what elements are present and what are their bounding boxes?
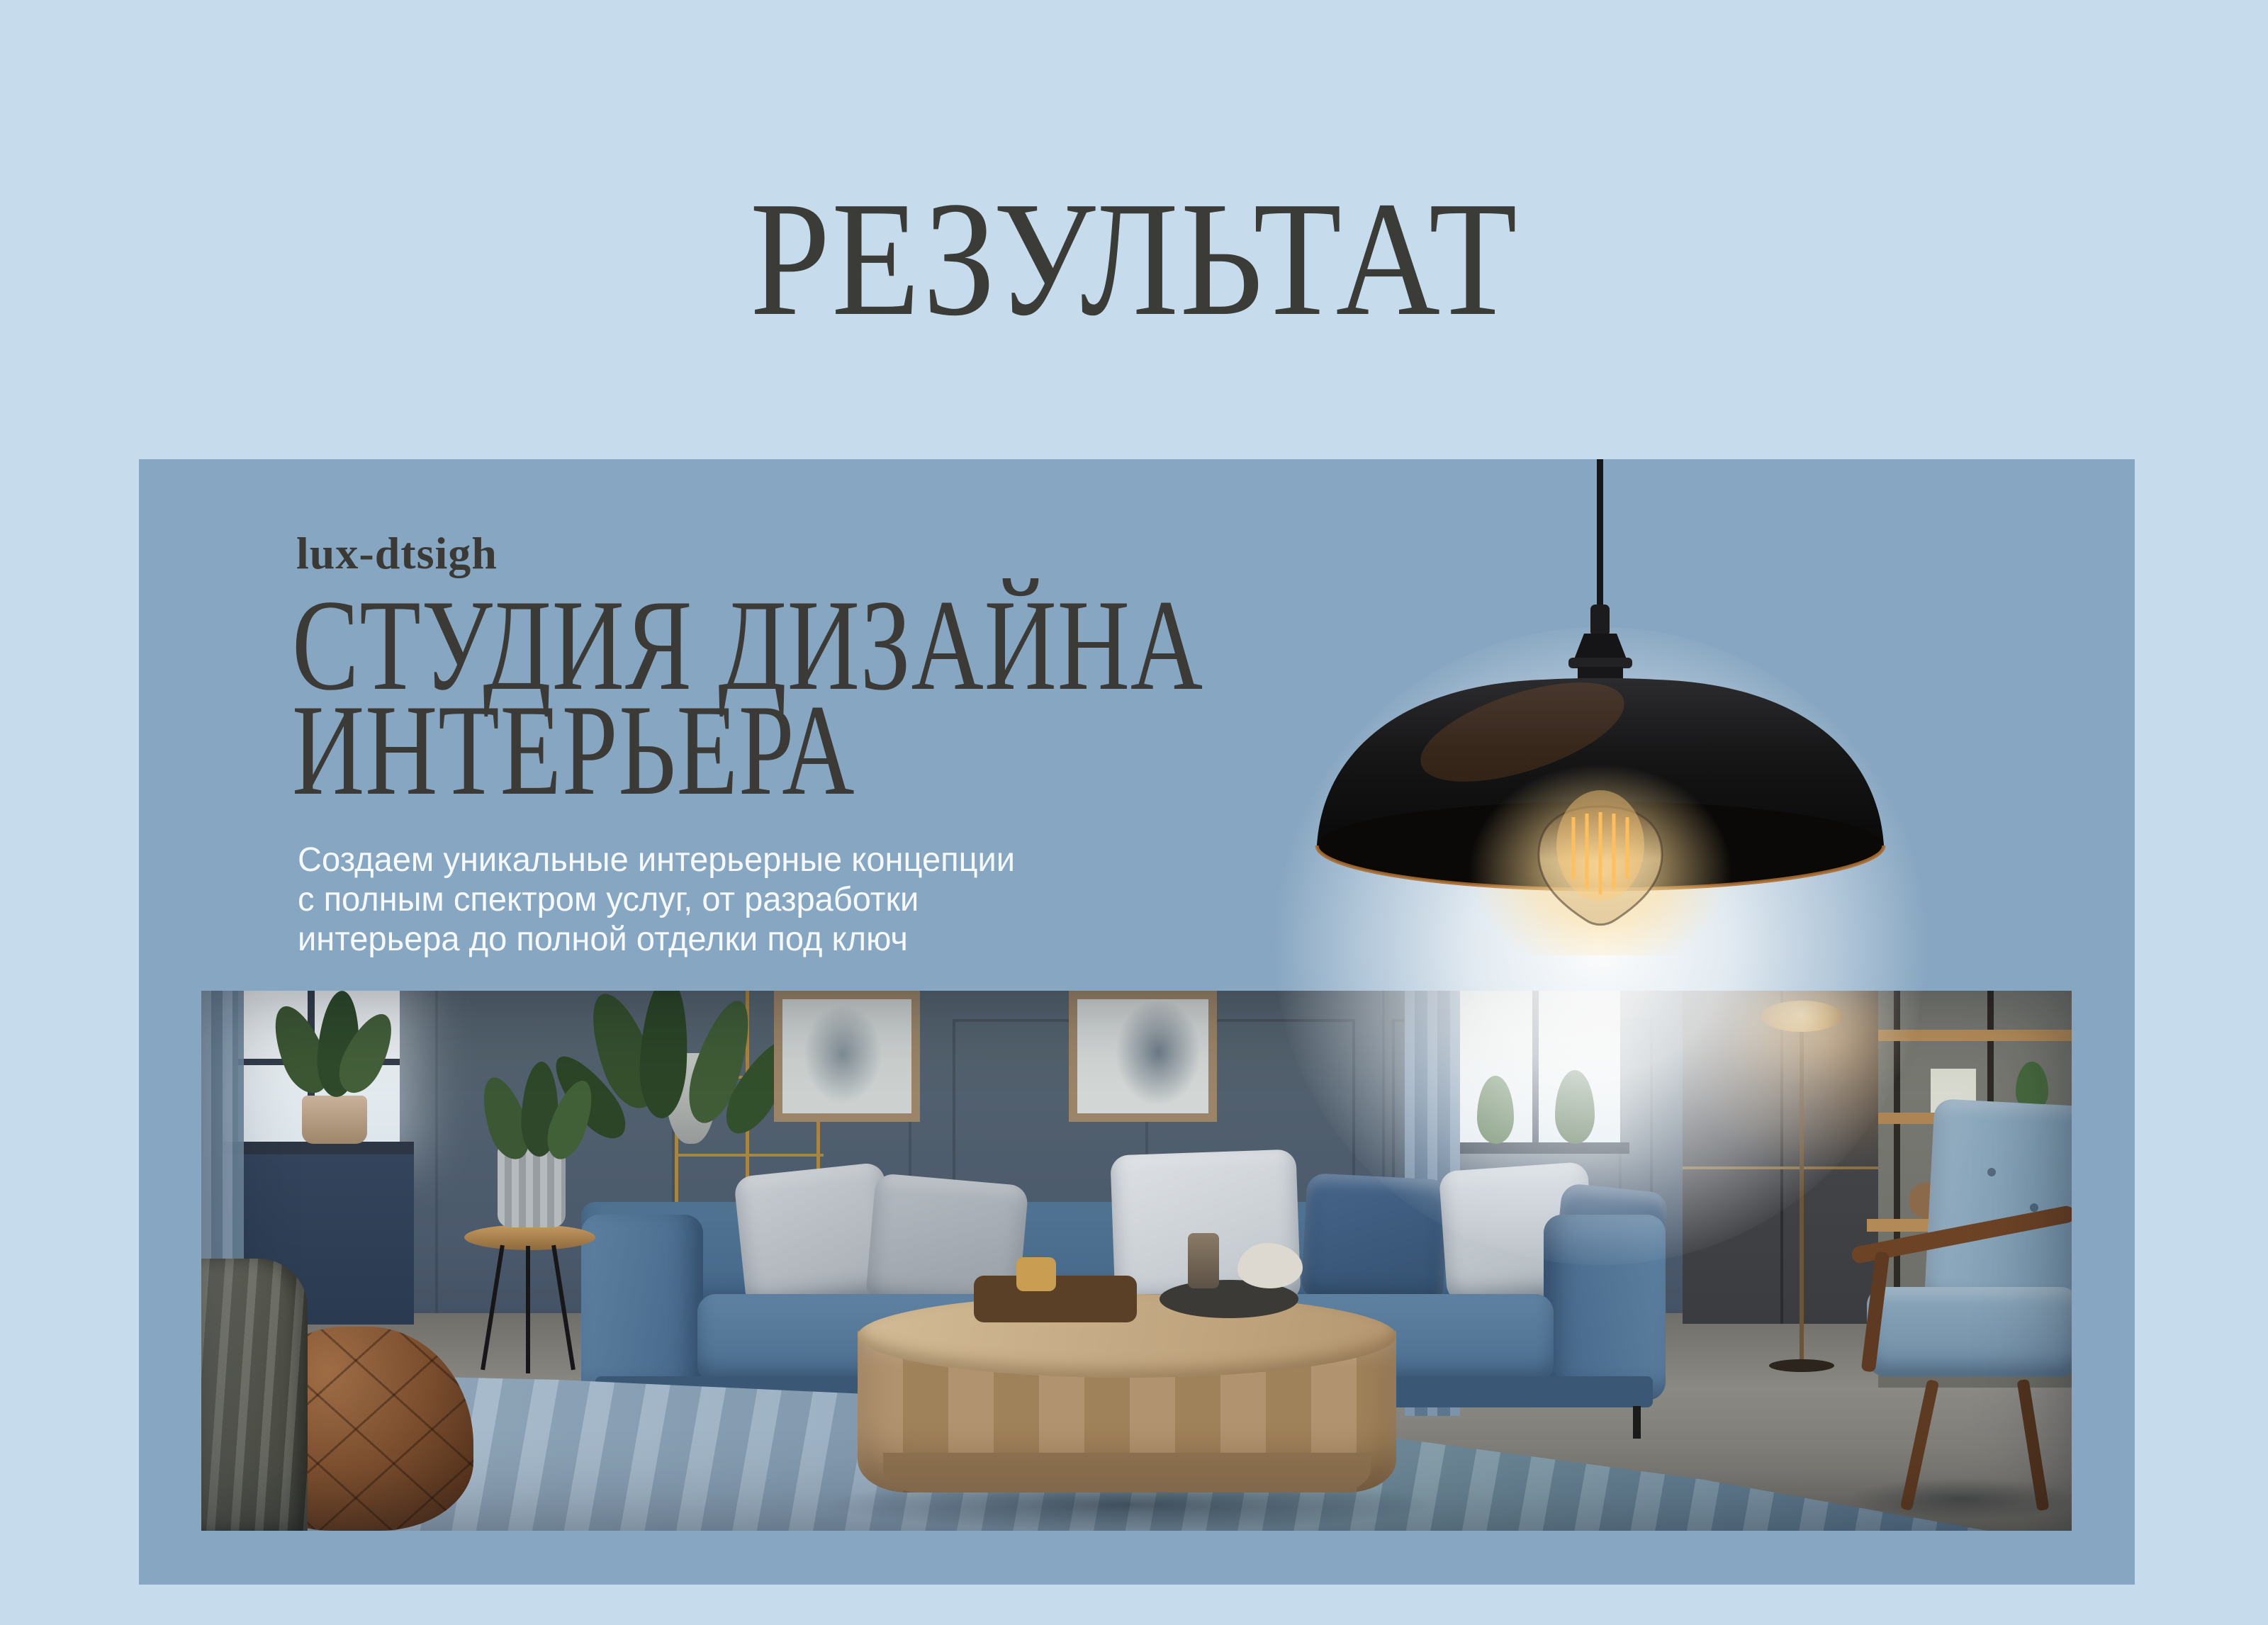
pendant-lamp-icon bbox=[1246, 459, 1955, 955]
studio-description: Создаем уникальные интерьерные концепции… bbox=[298, 840, 1015, 960]
studio-heading: СТУДИЯ ДИЗАЙНА ИНТЕРЬЕРА bbox=[292, 592, 1203, 802]
studio-description-line2: с полным спектром услуг, от разработки bbox=[298, 880, 1015, 920]
studio-description-line1: Создаем уникальные интерьерные концепции bbox=[298, 840, 1015, 880]
page-title-text: РЕЗУЛЬТАТ bbox=[750, 177, 1518, 342]
page-title: РЕЗУЛЬТАТ bbox=[0, 177, 2268, 342]
studio-description-line3: интерьера до полной отделки под ключ bbox=[298, 920, 1015, 960]
brand-logo: lux-dtsigh bbox=[296, 527, 498, 580]
photo-vignette bbox=[201, 991, 2072, 1531]
interior-photo bbox=[201, 991, 2072, 1531]
